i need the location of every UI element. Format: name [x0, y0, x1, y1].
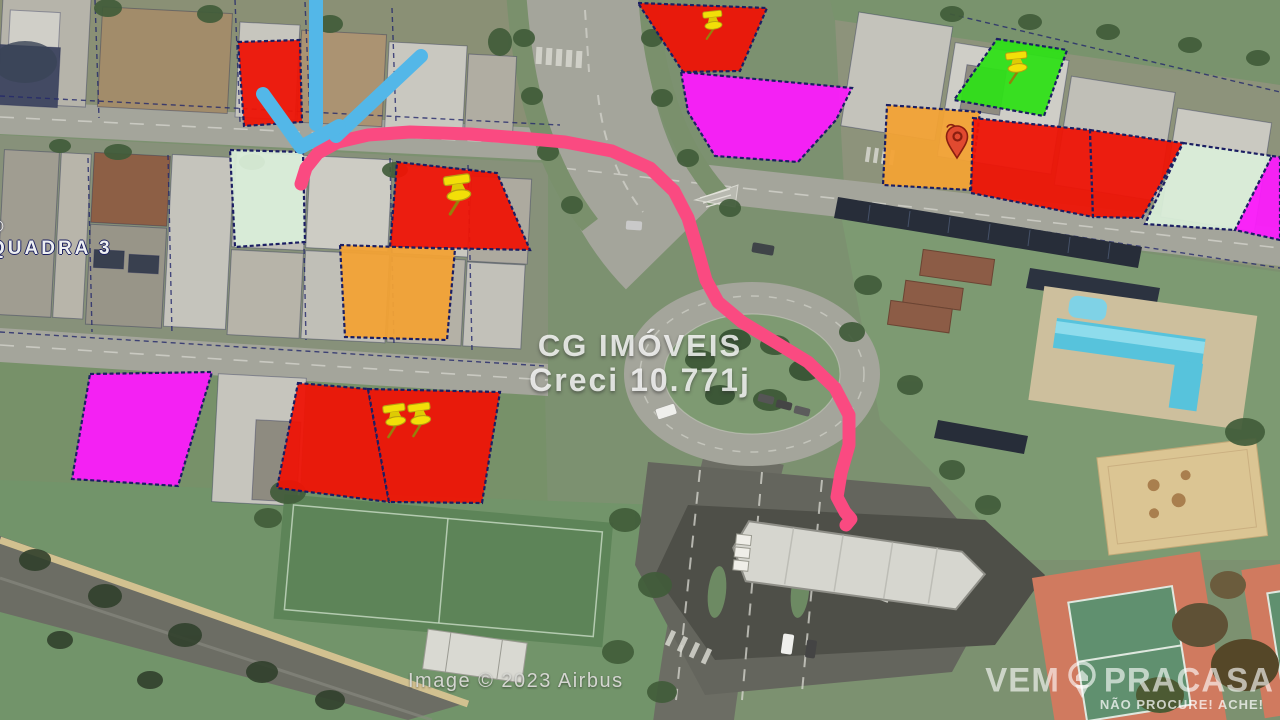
watermark-line1: CG IMÓVEIS: [340, 330, 940, 361]
block-label: QUADRA 3: [0, 238, 113, 260]
logo-word-vem: VEM: [985, 660, 1060, 700]
logo-word-pracasa: PRACASA: [1104, 660, 1274, 700]
watermark-line2: Creci 10.771j: [340, 364, 940, 396]
lot-overlay-magenta: [681, 72, 852, 162]
brand-logo: VEM PRACASA NÃO PROCURE! ACHE!: [985, 660, 1274, 712]
lot-overlay-orange: [340, 245, 455, 340]
watermark: CG IMÓVEIS Creci 10.771j: [340, 330, 940, 396]
lot-overlays: [72, 3, 1280, 503]
lot-overlay-orange: [883, 105, 980, 190]
lot-overlay-red: [971, 118, 1093, 217]
lot-overlay-mint: [230, 150, 305, 247]
logo-pin-icon: [1064, 660, 1100, 700]
satellite-map-image: © QUADRA 3 CG IMÓVEIS Creci 10.771j Imag…: [0, 0, 1280, 720]
lot-overlay-green: [954, 39, 1067, 116]
copyright-symbol: ©: [0, 217, 4, 237]
imagery-attribution: Image © 2023 Airbus: [408, 670, 624, 693]
lot-overlay-magenta: [72, 372, 212, 486]
direction-arrow-icon: [336, 56, 421, 136]
